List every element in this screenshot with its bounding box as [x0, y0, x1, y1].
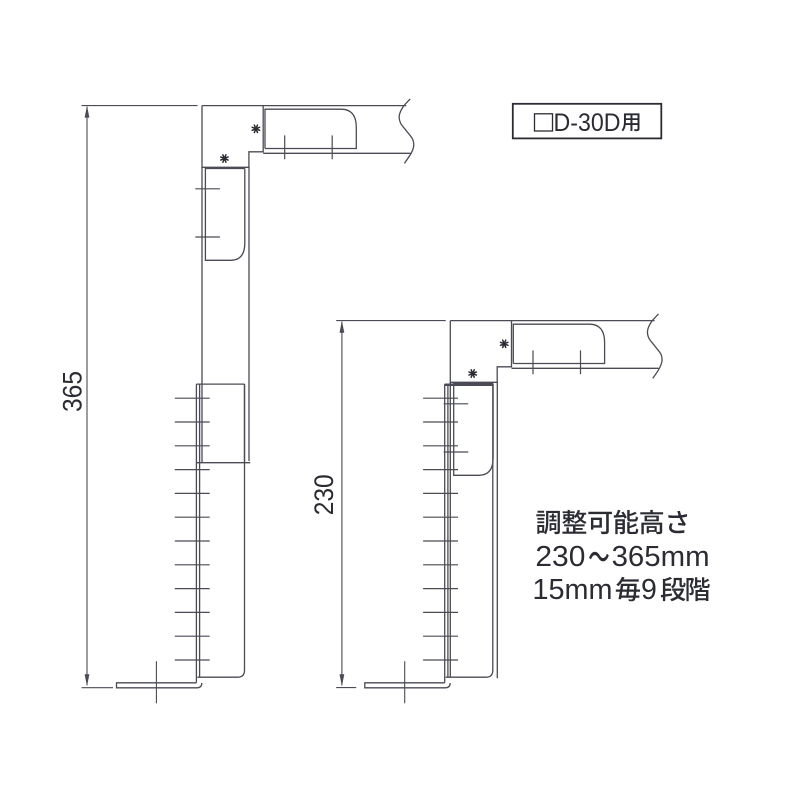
svg-text:365: 365 — [58, 371, 88, 412]
svg-text:9: 9 — [641, 574, 657, 606]
svg-text:15mm: 15mm — [533, 574, 613, 606]
svg-text:230: 230 — [309, 474, 339, 515]
svg-text:D-30D: D-30D — [554, 109, 621, 137]
svg-text:230: 230 — [535, 541, 585, 573]
svg-text:365mm: 365mm — [612, 541, 710, 573]
